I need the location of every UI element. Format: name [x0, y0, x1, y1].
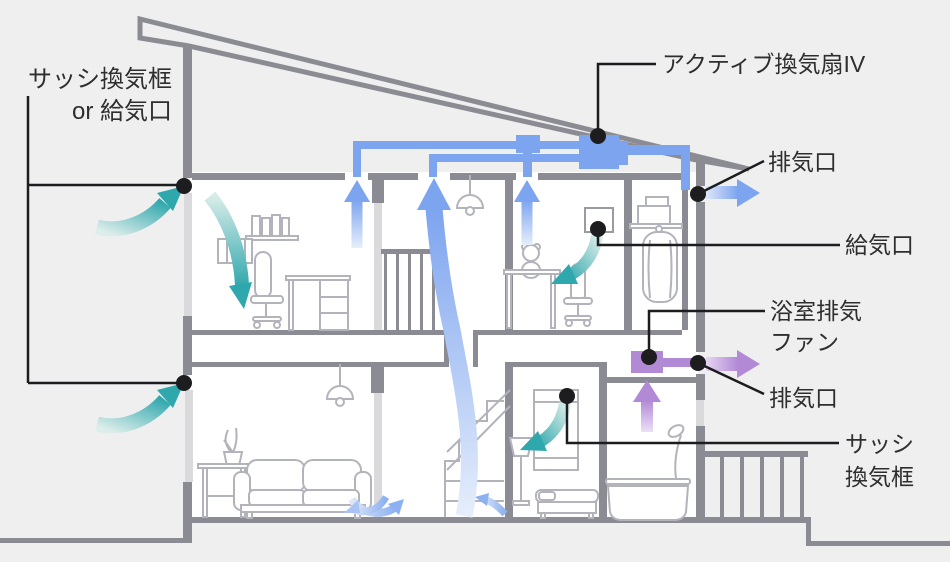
duct-junction-icon — [516, 135, 540, 153]
callout-dot-icon — [590, 128, 606, 144]
ground-step — [806, 517, 811, 545]
sash-window-1f — [185, 390, 193, 482]
callout-dot-icon — [176, 178, 192, 194]
callout-dot-icon — [176, 375, 192, 391]
bathtub — [608, 486, 688, 520]
label-sash-vent-line2: 換気框 — [845, 464, 914, 490]
left-wall-bottom — [183, 482, 192, 543]
door-header-2f — [372, 173, 384, 203]
callout-dot-icon — [690, 186, 706, 202]
left-wall-top — [183, 45, 192, 178]
label-exhaust-bottom: 排気口 — [769, 385, 838, 411]
storage-box — [638, 206, 670, 224]
duct-exhaust — [628, 145, 688, 155]
duct-upper — [353, 141, 580, 149]
teddy-bear — [523, 245, 539, 261]
door-header-1f — [371, 362, 384, 393]
ground-right — [806, 541, 950, 546]
wall-child-closet — [624, 173, 632, 330]
label-exhaust-top: 排気口 — [768, 149, 837, 175]
bath-vent-window — [696, 400, 704, 426]
label-sash-vent-or-supply-line1: サッシ換気框 — [28, 66, 172, 93]
callout-dot-icon — [641, 349, 657, 365]
label-sash-vent-line1: サッシ — [845, 431, 914, 457]
ground-left — [0, 538, 186, 543]
bathroom-ceiling — [605, 377, 696, 383]
bathtub-rim — [606, 479, 690, 484]
left-wall-mid — [183, 316, 192, 375]
floor-line — [183, 517, 811, 523]
door-2f — [374, 203, 382, 330]
sash-window-2f — [184, 193, 192, 316]
ventilation-diagram: サッシ換気框 or 給気口 アクティブ換気扇IV 排気口 給気口 浴室排気 ファ… — [0, 0, 950, 562]
callout-dot-icon — [590, 221, 606, 237]
label-supply-port: 給気口 — [845, 232, 914, 258]
callout-dot-icon — [559, 388, 575, 404]
house-cross-section-svg: サッシ換気框 or 給気口 アクティブ換気扇IV 排気口 給気口 浴室排気 ファ… — [0, 0, 950, 562]
door-1f — [374, 393, 382, 517]
label-bath-fan-line2: ファン — [770, 329, 839, 355]
label-bath-fan-line1: 浴室排気 — [770, 298, 862, 324]
label-active-fan: アクティブ換気扇IV — [662, 51, 866, 77]
closet-right-wall — [682, 173, 688, 330]
callout-dot-icon — [690, 355, 706, 371]
label-sash-vent-or-supply-line2: or 給気口 — [72, 98, 172, 125]
office-chair-2f — [255, 252, 271, 298]
duct-lower — [429, 154, 580, 162]
